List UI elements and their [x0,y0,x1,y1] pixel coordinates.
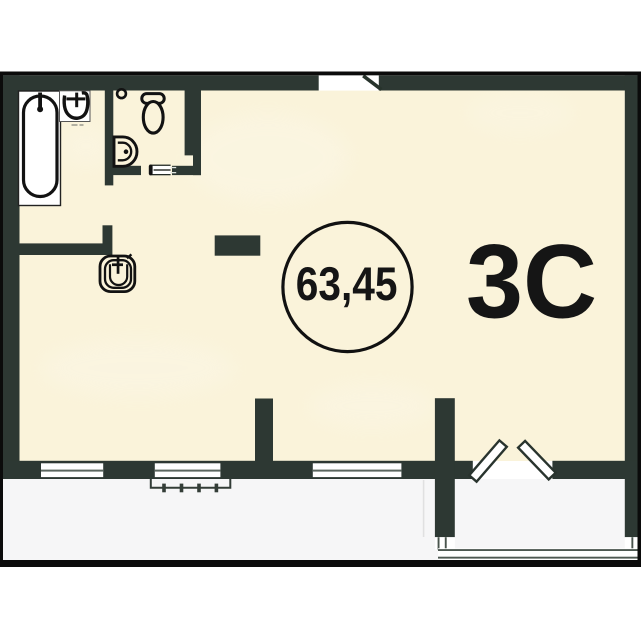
svg-text:3C: 3C [466,223,597,340]
svg-text:63,45: 63,45 [296,258,398,311]
